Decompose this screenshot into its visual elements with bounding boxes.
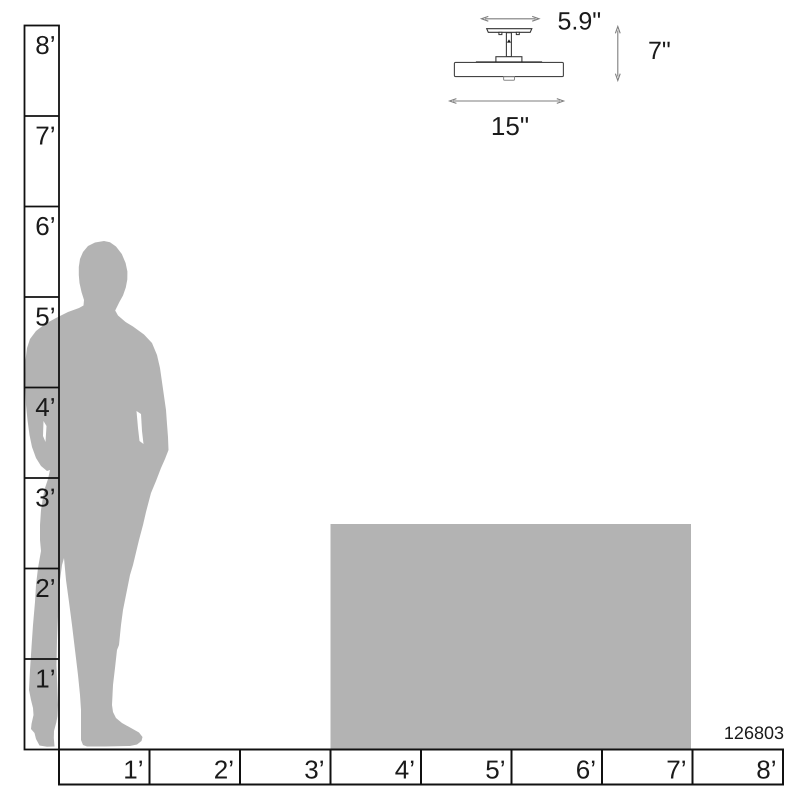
svg-text:7’: 7’: [35, 121, 55, 151]
svg-text:1’: 1’: [35, 664, 55, 694]
svg-text:8’: 8’: [35, 30, 55, 60]
svg-text:2’: 2’: [214, 755, 234, 785]
svg-text:4’: 4’: [35, 392, 55, 422]
svg-text:3’: 3’: [35, 483, 55, 513]
svg-text:7": 7": [648, 37, 671, 65]
svg-text:5.9": 5.9": [558, 8, 602, 36]
svg-text:2’: 2’: [35, 573, 55, 603]
svg-text:3’: 3’: [304, 755, 324, 785]
svg-text:15": 15": [491, 111, 529, 141]
svg-text:5’: 5’: [485, 755, 505, 785]
svg-text:1’: 1’: [123, 755, 143, 785]
svg-text:5’: 5’: [35, 302, 55, 332]
svg-text:126803: 126803: [724, 723, 784, 743]
svg-text:7’: 7’: [666, 755, 686, 785]
svg-text:4’: 4’: [395, 755, 415, 785]
svg-text:6’: 6’: [35, 211, 55, 241]
svg-text:8’: 8’: [756, 755, 776, 785]
svg-text:6’: 6’: [576, 755, 596, 785]
